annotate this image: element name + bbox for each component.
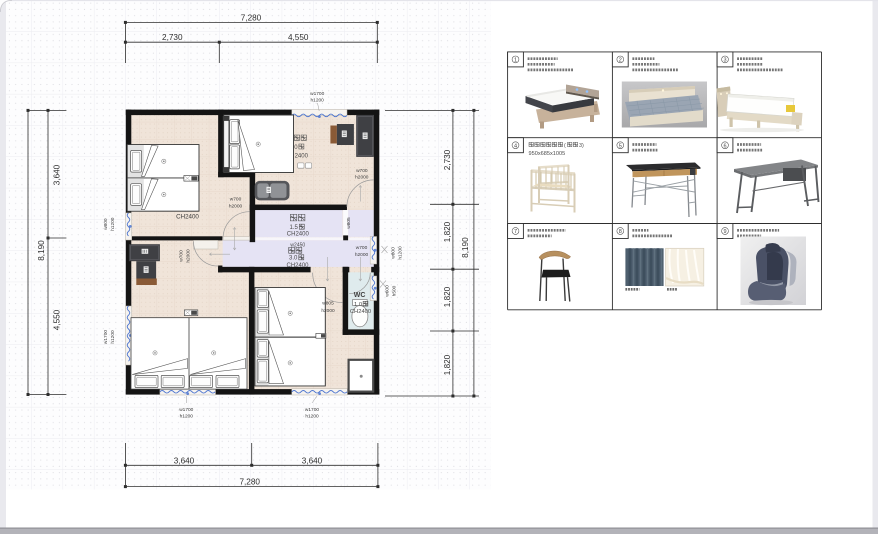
svg-text:1,820: 1,820	[443, 221, 452, 242]
svg-text:CH2400: CH2400	[176, 213, 199, 220]
svg-text:1.0: 1.0	[354, 302, 362, 308]
svg-text:w1700: w1700	[179, 407, 193, 413]
svg-text:2400: 2400	[295, 153, 309, 159]
svg-text:1,820: 1,820	[443, 354, 452, 375]
svg-text:h1200: h1200	[305, 413, 319, 419]
svg-text:w805: w805	[346, 217, 352, 229]
svg-text:7,280: 7,280	[239, 478, 260, 487]
svg-text:3: 3	[723, 58, 726, 64]
svg-text:3,640: 3,640	[53, 164, 62, 185]
svg-text:3,640: 3,640	[174, 457, 195, 466]
svg-text:3.0: 3.0	[289, 256, 298, 262]
svg-text:WC: WC	[354, 292, 366, 299]
svg-text:h1200: h1200	[110, 217, 116, 231]
svg-text:h1200: h1200	[311, 98, 325, 104]
svg-text:1: 1	[514, 58, 517, 64]
svg-text:w805: w805	[322, 301, 334, 307]
svg-text:950x685x1005: 950x685x1005	[529, 151, 566, 157]
svg-text:1,820: 1,820	[443, 286, 452, 307]
svg-text:2,730: 2,730	[162, 33, 183, 42]
svg-text:w1700: w1700	[103, 330, 109, 344]
svg-text:w1700: w1700	[310, 91, 324, 97]
svg-text:7: 7	[514, 229, 517, 235]
svg-text:4,550: 4,550	[53, 309, 62, 330]
svg-text:2,730: 2,730	[443, 149, 452, 170]
svg-text:1.5: 1.5	[290, 225, 299, 231]
svg-text:w700: w700	[356, 245, 368, 251]
svg-text:h2000: h2000	[355, 252, 369, 258]
svg-text:6: 6	[723, 143, 726, 149]
svg-text:3): 3)	[579, 143, 584, 149]
svg-text:2: 2	[619, 58, 622, 64]
svg-text:h1200: h1200	[180, 413, 194, 419]
svg-text:h2000: h2000	[321, 308, 335, 314]
svg-text:CH2400: CH2400	[350, 309, 371, 315]
svg-text:w2450: w2450	[290, 243, 305, 249]
svg-text:h2000: h2000	[229, 203, 243, 209]
svg-text:(: (	[564, 143, 566, 149]
svg-text:h2000: h2000	[186, 249, 192, 263]
svg-text:w700: w700	[356, 168, 368, 174]
svg-text:h1200: h1200	[398, 246, 404, 260]
svg-text:w700: w700	[230, 197, 242, 203]
svg-text:5: 5	[619, 143, 622, 149]
svg-text:8: 8	[619, 229, 622, 235]
svg-text:7,280: 7,280	[241, 14, 262, 23]
svg-text:CH2400: CH2400	[287, 231, 310, 237]
svg-text:CH2400: CH2400	[286, 263, 309, 269]
svg-text:h2000: h2000	[355, 175, 369, 181]
svg-text:3,640: 3,640	[302, 457, 323, 466]
svg-text:9: 9	[723, 229, 726, 235]
svg-text:w700: w700	[179, 250, 185, 262]
svg-text:8,190: 8,190	[37, 240, 46, 261]
svg-text:w800: w800	[391, 247, 397, 259]
svg-text:4,550: 4,550	[288, 33, 309, 42]
svg-text:h500: h500	[392, 285, 398, 296]
svg-text:w1700: w1700	[305, 407, 319, 413]
svg-text:w800: w800	[103, 218, 109, 230]
svg-text:h1200: h1200	[110, 330, 116, 344]
svg-text:4: 4	[514, 143, 517, 149]
svg-text:8,190: 8,190	[461, 237, 470, 258]
